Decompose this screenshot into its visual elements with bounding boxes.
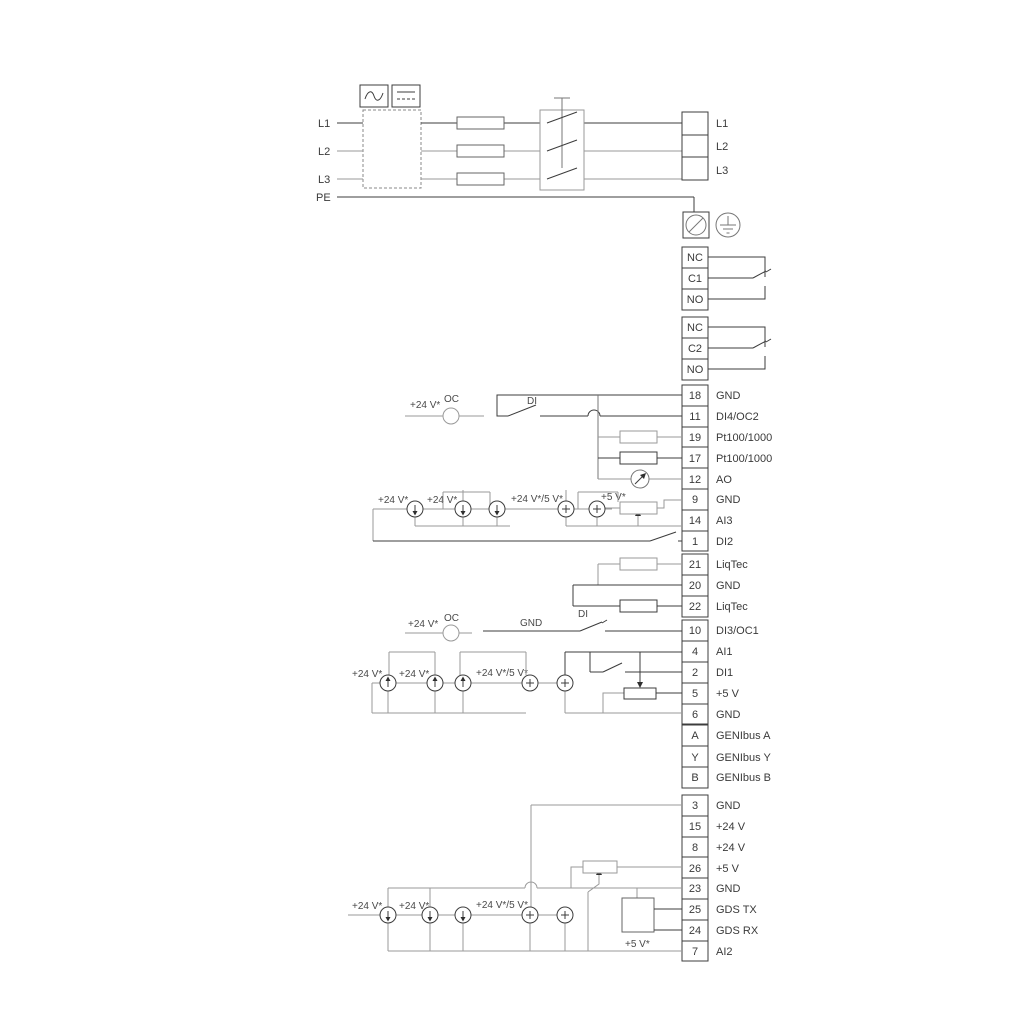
relay1-section: NC C1 NO [682, 247, 771, 310]
strip2-section: 21 LiqTec 20 GND 22 LiqTec [573, 554, 748, 617]
ai3-v5-label: +5 V* [601, 492, 626, 503]
current-source-icon [427, 675, 443, 691]
strip4-row0-label: GND [716, 800, 741, 812]
di4-switch-blade [508, 405, 536, 416]
voltage-source-icon [557, 907, 573, 923]
genibus-row2-num: B [691, 772, 698, 784]
filter-dashed-box [363, 110, 421, 188]
strip4-row6-label: GDS RX [716, 925, 759, 937]
gds-tx-rx-wires [654, 909, 682, 930]
strip1-row0-num: 18 [689, 390, 701, 402]
strip1-row4-num: 12 [689, 474, 701, 486]
strip1-row6-num: 14 [689, 515, 701, 527]
strip1-row3-label: Pt100/1000 [716, 453, 772, 465]
strip3-row0-num: 10 [689, 625, 701, 637]
ai1-wiper-arrow [637, 682, 643, 688]
genibus-row1-label: GENIbus Y [716, 752, 771, 764]
strip2-row2-label: LiqTec [716, 601, 748, 613]
ai2-v24-label-1: +24 V* [352, 901, 382, 912]
ai2-v24v5-label: +24 V*/5 V* [476, 900, 528, 911]
ai1-potentiometer [624, 688, 656, 699]
strip3-row1-label: AI1 [716, 646, 733, 658]
strip3-row0-label: DI3/OC1 [716, 625, 759, 637]
line-l3-label: L3 [318, 174, 330, 186]
ai2-potentiometer [583, 861, 617, 873]
strip1-row7-num: 1 [692, 536, 698, 548]
terminal-l1-label: L1 [716, 118, 728, 130]
strip3-row2-label: DI1 [716, 667, 733, 679]
gray-power-wires [337, 151, 682, 179]
fuse-l1 [457, 117, 504, 129]
strip3-row3-label: +5 V [716, 688, 740, 700]
strip3-row2-num: 2 [692, 667, 698, 679]
strip1-row2-label: Pt100/1000 [716, 432, 772, 444]
strip1-row5-label: GND [716, 494, 741, 506]
earth-ground-bars [720, 216, 736, 233]
strip4-row3-label: +5 V [716, 863, 740, 875]
strip1-row6-label: AI3 [716, 515, 733, 527]
oc1-v24-label: +24 V* [408, 619, 438, 630]
strip4-row6-num: 24 [689, 925, 701, 937]
wiring-diagram-page: L1 L2 L3 PE L1 L2 L3 NC C1 [0, 0, 1024, 1024]
pt100-sensor-19 [620, 431, 657, 443]
genibus-row2-label: GENIbus B [716, 772, 771, 784]
gds-v5-label: +5 V* [625, 939, 650, 950]
pe-terminal-section [683, 212, 740, 238]
dc-symbol-box [392, 85, 420, 107]
line-l1-label: L1 [318, 118, 330, 130]
strip1-row1-num: 11 [689, 411, 700, 423]
relay2-nc-label: NC [687, 322, 703, 334]
strip2-row1-label: GND [716, 580, 741, 592]
voltage-source-icon [558, 501, 574, 517]
line-l2-label: L2 [318, 146, 330, 158]
strip4-row7-num: 7 [692, 946, 698, 958]
mains-terminal-block [682, 112, 708, 180]
relay2-section: NC C2 NO [682, 317, 771, 380]
liqtec-sensor-21 [620, 558, 657, 570]
strip1-section: 18 GND 11 DI4/OC2 19 Pt100/1000 17 Pt100… [373, 385, 772, 551]
ai1-v24-label-2: +24 V* [399, 669, 429, 680]
relay1-contact-wires [708, 257, 765, 299]
di4-gnd-wires [497, 395, 682, 416]
strip4-section: 3 GND 15 +24 V 8 +24 V 26 +5 V 23 GND 25… [348, 795, 759, 961]
strip3-row3-num: 5 [692, 688, 698, 700]
fuse-l3 [457, 173, 504, 185]
strip4-row2-num: 8 [692, 842, 698, 854]
wiring-diagram: L1 L2 L3 PE L1 L2 L3 NC C1 [0, 0, 1024, 1024]
strip1-row0-label: GND [716, 390, 741, 402]
strip4-row3-num: 26 [689, 863, 701, 875]
current-source-icon [489, 501, 505, 517]
strip4-row1-label: +24 V [716, 821, 746, 833]
relay2-c2-label: C2 [688, 343, 702, 355]
oc2-v24-label: +24 V* [410, 400, 440, 411]
genibus-row0-num: A [691, 730, 699, 742]
ai1-v24-label-1: +24 V* [352, 669, 382, 680]
oc1-output-circle [443, 625, 459, 641]
strip3-row4-num: 6 [692, 709, 698, 721]
ai1-wires [565, 652, 682, 682]
genibus-row1-num: Y [691, 752, 699, 764]
strip1-row4-label: AO [716, 474, 732, 486]
fuse-l2 [457, 145, 504, 157]
oc1-oc-label: OC [444, 613, 459, 624]
genibus-row0-label: GENIbus A [716, 730, 771, 742]
strip1-row2-num: 19 [689, 432, 701, 444]
di2-switch-blade [650, 532, 676, 541]
dark-power-wires [337, 123, 694, 212]
strip4-row4-label: GND [716, 883, 741, 895]
ai3-v24-label-2: +24 V* [427, 495, 457, 506]
relay1-nc-label: NC [687, 252, 703, 264]
strip2-row0-num: 21 [689, 559, 701, 571]
oc2-oc-label: OC [444, 394, 459, 405]
strip4-row5-label: GDS TX [716, 904, 757, 916]
di1-wires [590, 652, 682, 672]
oc2-output-circle [443, 408, 459, 424]
relay1-c1-label: C1 [688, 273, 702, 285]
strip1-row3-num: 17 [689, 453, 701, 465]
current-source-icon [407, 501, 423, 517]
current-source-icon [455, 675, 471, 691]
current-source-icon [455, 907, 471, 923]
voltage-source-icon [522, 907, 538, 923]
ai3-potentiometer [620, 502, 657, 514]
strip2-row2-num: 22 [689, 601, 701, 613]
strip4-row4-num: 23 [689, 883, 701, 895]
di3-di-label: DI [578, 609, 588, 620]
pt100-sensor-17 [620, 452, 657, 464]
voltage-source-icon [589, 501, 605, 517]
line-pe-label: PE [316, 192, 331, 204]
current-source-icon [380, 907, 396, 923]
relay1-no-label: NO [687, 294, 704, 306]
ai1-v24v5-label: +24 V*/5 V* [476, 668, 528, 679]
strip2-row0-label: LiqTec [716, 559, 748, 571]
current-source-icon [422, 907, 438, 923]
relay2-contact-blade [753, 339, 771, 348]
current-source-icon [455, 501, 471, 517]
di3-gnd-label: GND [520, 618, 542, 629]
strip3-row1-num: 4 [692, 646, 698, 658]
terminal-l3-label: L3 [716, 165, 728, 177]
strip4-row2-label: +24 V [716, 842, 746, 854]
di3-switch-blade [580, 620, 607, 631]
strip4-row0-num: 3 [692, 800, 698, 812]
relay2-contact-wires [708, 327, 765, 369]
liqtec-sensor-22 [620, 600, 657, 612]
genibus-section: A GENIbus A Y GENIbus Y B GENIbus B [682, 725, 771, 788]
power-input-section: L1 L2 L3 PE L1 L2 L3 [316, 85, 728, 212]
voltage-source-icon [522, 675, 538, 691]
voltage-source-icon [557, 675, 573, 691]
terminal-l2-label: L2 [716, 141, 728, 153]
relay1-contact-blade [753, 269, 771, 278]
di1-switch-blade [603, 663, 622, 672]
strip3-row4-label: GND [716, 709, 741, 721]
strip3-section: 10 DI3/OC1 4 AI1 2 DI1 5 +5 V 6 GND +24 … [352, 609, 759, 724]
strip4-row5-num: 25 [689, 904, 701, 916]
strip1-row1-label: DI4/OC2 [716, 411, 759, 423]
strip1-row5-num: 9 [692, 494, 698, 506]
strip1-row7-label: DI2 [716, 536, 733, 548]
current-source-icon [380, 675, 396, 691]
relay2-no-label: NO [687, 364, 704, 376]
ai3-pot-gnd-wire [657, 500, 682, 508]
strip2-row1-num: 20 [689, 580, 701, 592]
strip4-row7-label2: AI2 [716, 946, 733, 958]
ai3-v24-label-1: +24 V* [378, 495, 408, 506]
gds-sensor-box [622, 898, 654, 932]
strip4-row1-num: 15 [689, 821, 701, 833]
ai3-v24v5-label: +24 V*/5 V* [511, 494, 563, 505]
